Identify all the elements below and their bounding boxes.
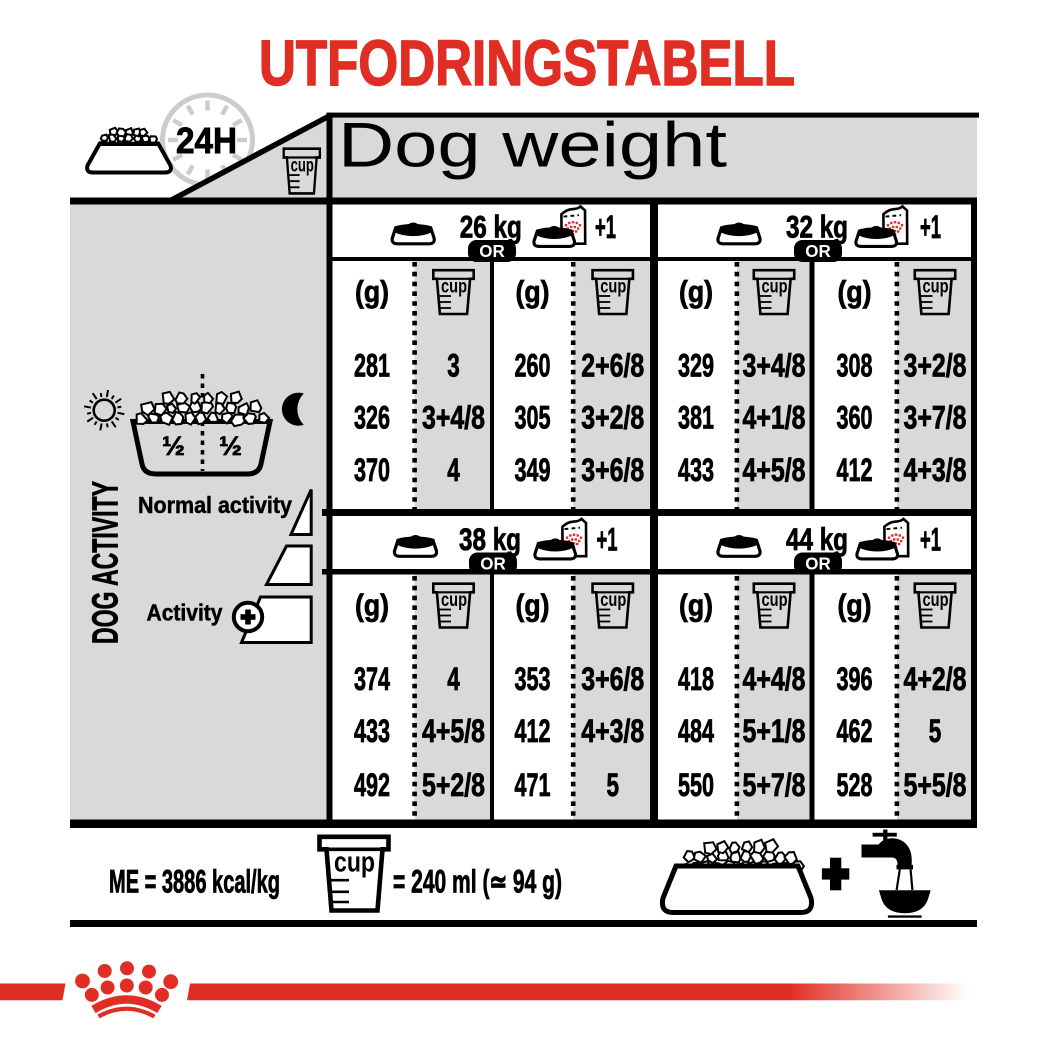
svg-text:DOG ACTIVITY: DOG ACTIVITY [85, 481, 126, 644]
svg-text:OR: OR [480, 554, 506, 574]
svg-text:+1: +1 [920, 209, 941, 245]
svg-text:ME = 3886 kcal/kg: ME = 3886 kcal/kg [109, 863, 280, 899]
svg-text:353: 353 [515, 661, 551, 697]
svg-text:4+3/8: 4+3/8 [581, 713, 644, 749]
svg-text:5: 5 [929, 713, 942, 749]
svg-text:360: 360 [837, 400, 873, 436]
svg-text:4+5/8: 4+5/8 [422, 713, 485, 749]
svg-text:4: 4 [447, 452, 460, 488]
svg-text:cup: cup [334, 847, 375, 879]
svg-text:381: 381 [678, 400, 714, 436]
svg-text:4+5/8: 4+5/8 [743, 452, 806, 488]
svg-text:308: 308 [837, 348, 873, 384]
svg-text:38 kg: 38 kg [459, 521, 521, 557]
svg-text:4+4/8: 4+4/8 [743, 661, 806, 697]
svg-text:44 kg: 44 kg [786, 521, 848, 557]
svg-text:412: 412 [837, 452, 873, 488]
svg-text:3+4/8: 3+4/8 [422, 400, 485, 436]
svg-text:418: 418 [678, 661, 714, 697]
svg-text:260: 260 [515, 348, 551, 384]
svg-text:OR: OR [479, 241, 505, 261]
svg-text:26 kg: 26 kg [460, 208, 522, 244]
svg-text:5+7/8: 5+7/8 [743, 767, 806, 803]
svg-text:(g): (g) [838, 274, 872, 309]
svg-text:370: 370 [354, 452, 390, 488]
svg-text:5: 5 [607, 767, 620, 803]
svg-text:329: 329 [678, 348, 714, 384]
svg-text:550: 550 [678, 767, 714, 803]
svg-text:433: 433 [678, 452, 714, 488]
svg-text:492: 492 [354, 767, 390, 803]
svg-text:Normal activity: Normal activity [138, 492, 292, 518]
svg-text:(g): (g) [679, 274, 713, 309]
svg-text:3+7/8: 3+7/8 [904, 400, 967, 436]
svg-text:½: ½ [219, 431, 242, 461]
svg-text:(g): (g) [355, 588, 389, 623]
svg-text:3+6/8: 3+6/8 [581, 661, 644, 697]
svg-text:+1: +1 [597, 521, 618, 557]
svg-text:412: 412 [515, 713, 551, 749]
svg-text:2+6/8: 2+6/8 [581, 348, 644, 384]
svg-text:OR: OR [805, 241, 831, 261]
svg-text:4+1/8: 4+1/8 [743, 400, 806, 436]
svg-text:305: 305 [515, 400, 551, 436]
svg-text:3+4/8: 3+4/8 [743, 348, 806, 384]
svg-text:OR: OR [805, 554, 831, 574]
svg-text:3: 3 [447, 348, 460, 384]
svg-text:3+2/8: 3+2/8 [581, 400, 644, 436]
svg-text:484: 484 [678, 713, 714, 749]
svg-text:UTFODRINGSTABELL: UTFODRINGSTABELL [259, 27, 795, 99]
svg-text:24H: 24H [176, 120, 237, 161]
svg-text:471: 471 [515, 767, 551, 803]
svg-text:3+2/8: 3+2/8 [904, 348, 967, 384]
svg-text:3+6/8: 3+6/8 [581, 452, 644, 488]
svg-text:Dog weight: Dog weight [338, 111, 727, 181]
svg-text:½: ½ [162, 431, 185, 461]
svg-text:433: 433 [354, 713, 390, 749]
svg-text:326: 326 [354, 400, 390, 436]
svg-text:396: 396 [837, 661, 873, 697]
svg-text:(g): (g) [838, 588, 872, 623]
svg-text:(g): (g) [516, 274, 550, 309]
svg-text:4+2/8: 4+2/8 [904, 661, 967, 697]
svg-text:528: 528 [837, 767, 873, 803]
svg-text:349: 349 [515, 452, 551, 488]
svg-text:281: 281 [354, 348, 390, 384]
svg-text:Activity: Activity [147, 600, 223, 626]
svg-text:= 240 ml (≃ 94 g): = 240 ml (≃ 94 g) [393, 863, 562, 899]
svg-text:5+5/8: 5+5/8 [904, 767, 967, 803]
svg-text:4+3/8: 4+3/8 [904, 452, 967, 488]
svg-text:32 kg: 32 kg [786, 208, 848, 244]
svg-text:5+2/8: 5+2/8 [422, 767, 485, 803]
svg-text:374: 374 [354, 661, 390, 697]
svg-text:+1: +1 [920, 521, 941, 557]
svg-text:(g): (g) [355, 274, 389, 309]
svg-text:(g): (g) [516, 588, 550, 623]
svg-text:4: 4 [447, 661, 460, 697]
svg-text:462: 462 [837, 713, 873, 749]
svg-text:+1: +1 [595, 209, 616, 245]
svg-text:5+1/8: 5+1/8 [743, 713, 806, 749]
svg-text:(g): (g) [679, 588, 713, 623]
